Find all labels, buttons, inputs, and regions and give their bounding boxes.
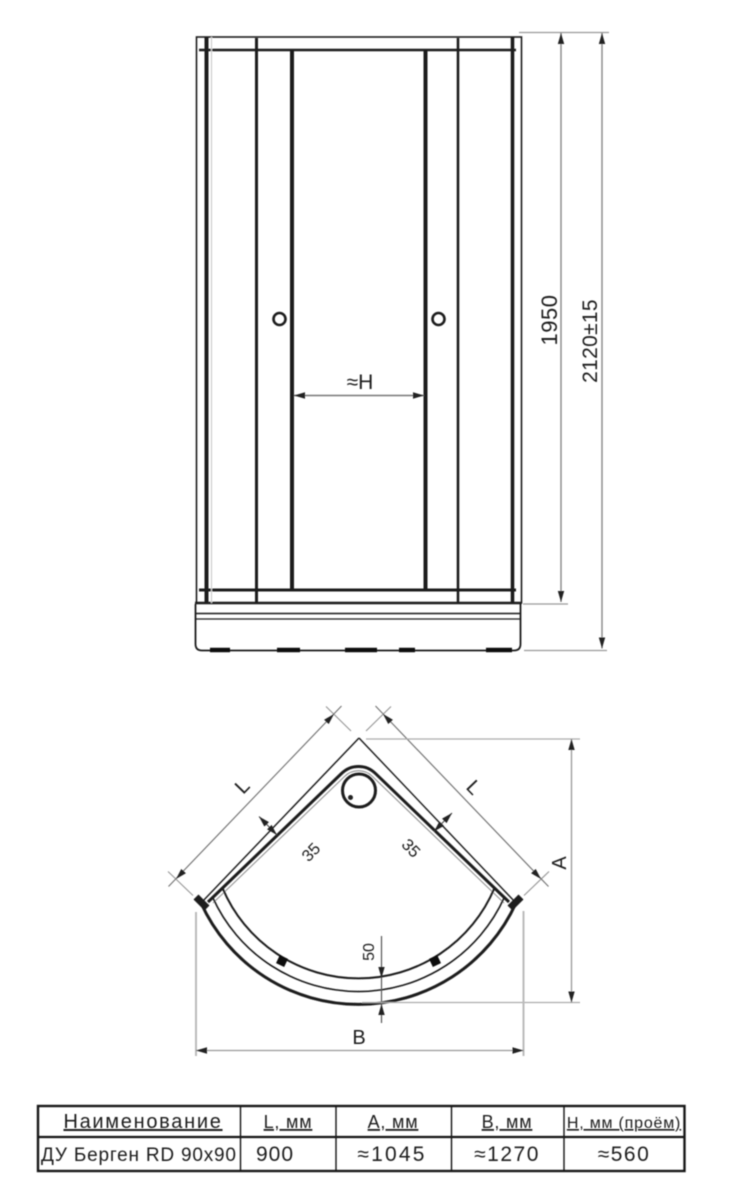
svg-text:Наименование: Наименование [63,1111,222,1133]
svg-text:B, мм: B, мм [482,1112,533,1132]
svg-text:≈560: ≈560 [598,1143,651,1166]
svg-text:2120±15: 2120±15 [579,299,602,383]
svg-text:900: 900 [256,1143,294,1166]
svg-text:35: 35 [299,840,325,866]
svg-text:L, мм: L, мм [264,1112,313,1132]
svg-text:50: 50 [361,943,378,961]
svg-text:H, мм (проём): H, мм (проём) [567,1115,681,1132]
svg-text:B: B [352,1027,365,1049]
svg-text:L: L [462,776,486,799]
svg-text:≈1045: ≈1045 [357,1143,426,1166]
svg-text:A: A [549,856,571,870]
svg-text:A, мм: A, мм [368,1112,419,1132]
svg-text:1950: 1950 [537,295,562,346]
svg-text:≈H: ≈H [347,371,374,394]
svg-text:ДУ Берген RD 90х90: ДУ Берген RD 90х90 [41,1145,237,1166]
svg-text:≈1270: ≈1270 [474,1143,540,1166]
svg-text:35: 35 [398,836,424,862]
svg-text:L: L [231,775,255,798]
